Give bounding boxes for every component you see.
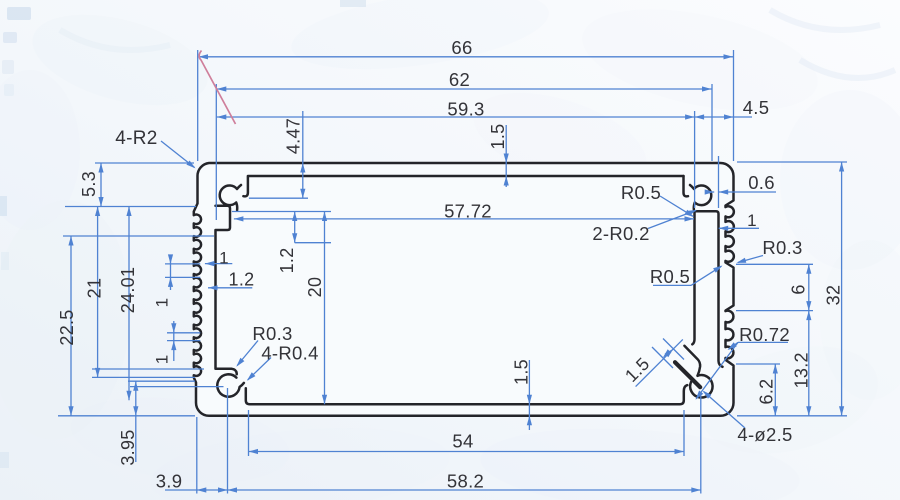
svg-text:4-R2: 4-R2 <box>115 128 157 149</box>
svg-text:1: 1 <box>153 298 172 308</box>
svg-text:1.5: 1.5 <box>512 359 532 385</box>
svg-text:R0.5: R0.5 <box>650 266 690 287</box>
svg-text:21: 21 <box>85 278 105 299</box>
svg-text:6: 6 <box>789 284 809 294</box>
svg-text:22.5: 22.5 <box>57 309 77 345</box>
svg-text:1.5: 1.5 <box>488 124 508 150</box>
svg-text:13.2: 13.2 <box>791 352 811 388</box>
svg-text:59.3: 59.3 <box>447 99 484 120</box>
svg-text:3.95: 3.95 <box>118 429 138 465</box>
svg-text:58.2: 58.2 <box>447 471 484 492</box>
svg-text:R0.3: R0.3 <box>252 323 292 344</box>
svg-text:1: 1 <box>219 249 229 268</box>
svg-text:62: 62 <box>449 69 470 90</box>
svg-text:3.9: 3.9 <box>156 471 183 492</box>
svg-text:1: 1 <box>747 211 757 230</box>
svg-text:57.72: 57.72 <box>444 201 492 222</box>
svg-text:4-ø2.5: 4-ø2.5 <box>737 424 792 445</box>
svg-text:54: 54 <box>452 431 473 452</box>
svg-text:R0.72: R0.72 <box>739 324 790 345</box>
svg-text:R0.5: R0.5 <box>621 182 661 203</box>
svg-text:R0.3: R0.3 <box>762 237 802 258</box>
svg-text:4.47: 4.47 <box>284 118 304 154</box>
svg-text:1.2: 1.2 <box>229 270 255 290</box>
svg-text:5.3: 5.3 <box>79 171 99 197</box>
svg-text:20: 20 <box>305 277 325 298</box>
svg-text:24.01: 24.01 <box>118 267 138 314</box>
svg-text:1: 1 <box>153 355 172 365</box>
svg-text:4.5: 4.5 <box>743 97 770 118</box>
svg-text:0.6: 0.6 <box>748 172 775 193</box>
svg-text:32: 32 <box>824 285 844 306</box>
svg-text:1.2: 1.2 <box>277 247 297 273</box>
svg-text:2-R0.2: 2-R0.2 <box>592 223 649 244</box>
svg-text:66: 66 <box>451 37 472 58</box>
svg-text:6.2: 6.2 <box>757 379 777 405</box>
svg-text:4-R0.4: 4-R0.4 <box>261 343 318 364</box>
